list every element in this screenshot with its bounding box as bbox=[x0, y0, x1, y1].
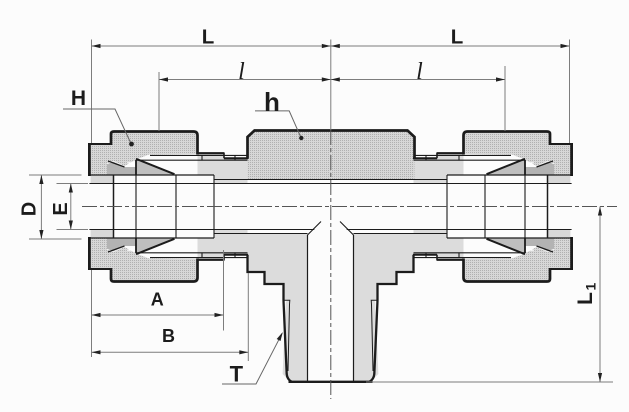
svg-text:T: T bbox=[230, 362, 244, 387]
svg-text:L: L bbox=[451, 26, 464, 49]
svg-text:E: E bbox=[50, 202, 72, 215]
svg-text:D: D bbox=[19, 202, 41, 216]
svg-text:l: l bbox=[238, 59, 245, 85]
svg-text:H: H bbox=[71, 87, 86, 110]
svg-text:l: l bbox=[416, 59, 423, 85]
svg-text:A: A bbox=[151, 290, 164, 310]
svg-text:B: B bbox=[162, 326, 175, 346]
svg-text:L: L bbox=[202, 26, 215, 49]
svg-text:h: h bbox=[264, 87, 280, 117]
